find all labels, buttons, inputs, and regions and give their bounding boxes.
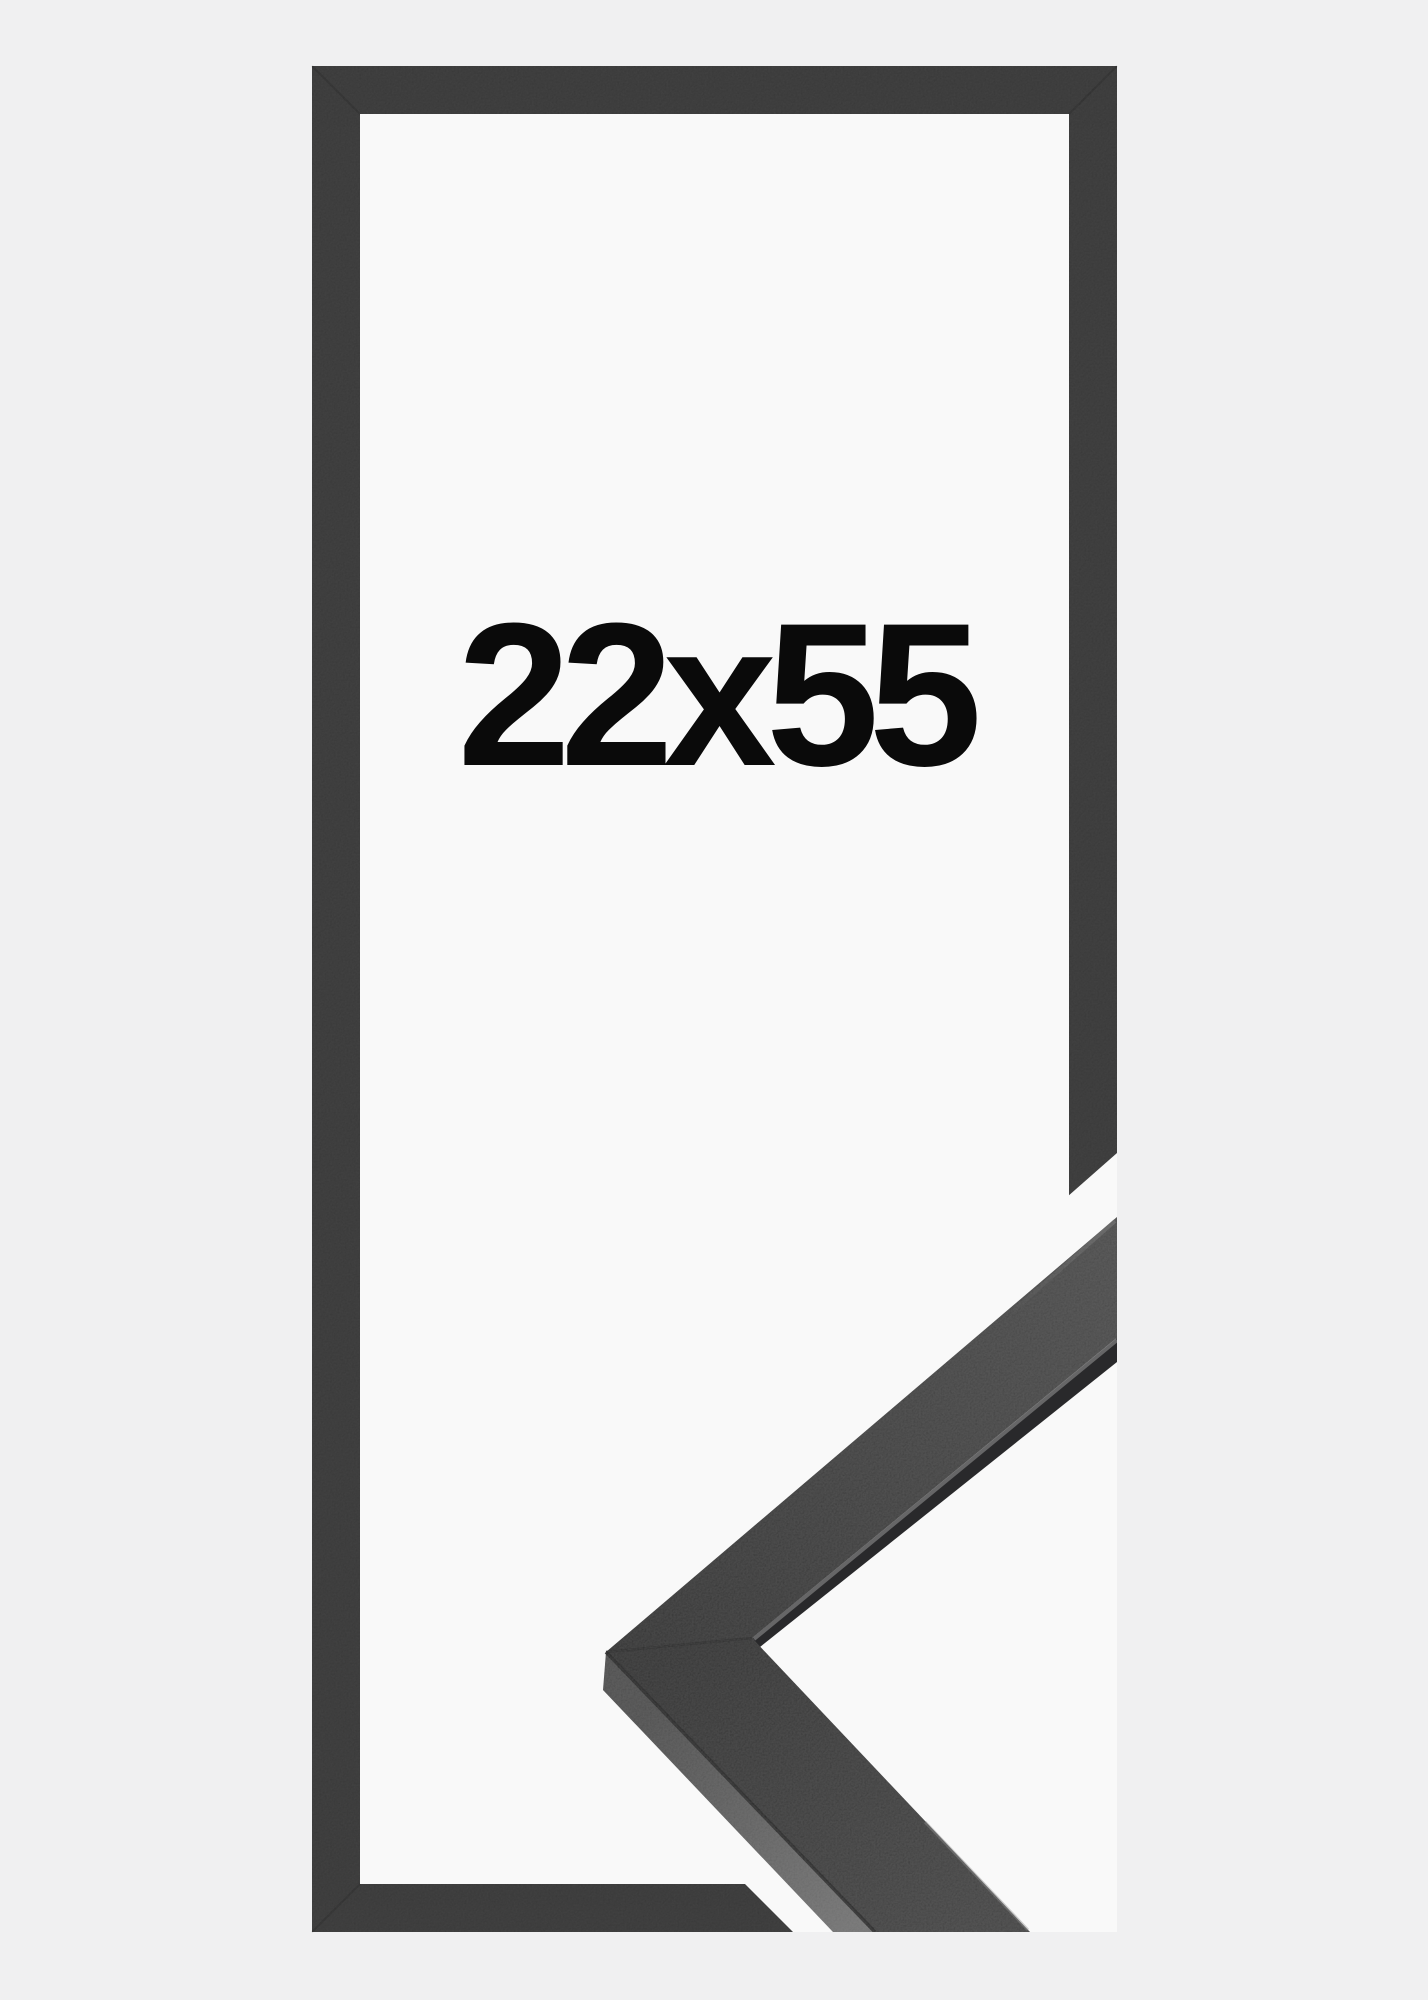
frame-illustration bbox=[0, 0, 1428, 2000]
product-image: 22x55 bbox=[0, 0, 1428, 2000]
size-label: 22x55 bbox=[312, 593, 1117, 797]
